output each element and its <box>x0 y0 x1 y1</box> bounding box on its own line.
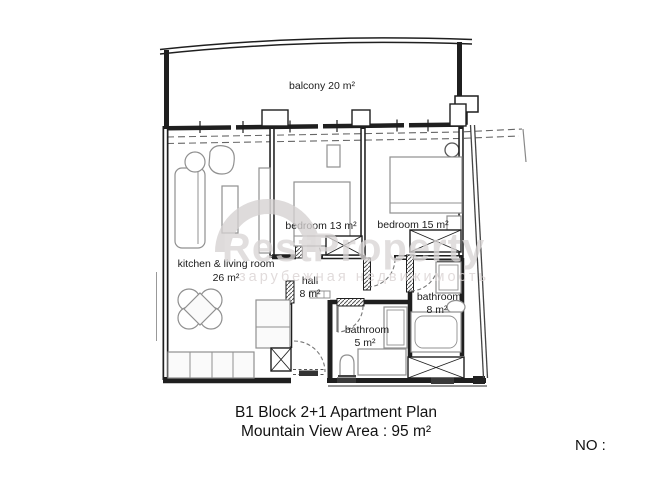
bathroom5-label-2: 5 m² <box>355 337 377 349</box>
hall-label-2: 8 m² <box>300 288 322 300</box>
neighbor-wall-stub <box>523 129 526 162</box>
window-pier-2 <box>352 110 370 126</box>
floor-plan-image: balcony 20 m² <box>0 0 666 480</box>
shower-5-inner <box>387 310 404 345</box>
wardrobe-bath8 <box>408 357 464 378</box>
column-circle <box>445 143 459 157</box>
bathroom5-label-1: bathroom <box>345 324 390 336</box>
toilet-icon <box>340 355 354 376</box>
shaft-box <box>271 348 291 371</box>
window-dashed-2 <box>167 136 519 144</box>
plan-number-label: NO : <box>575 437 606 454</box>
armchair-blob <box>209 146 234 174</box>
kitchen-tall-unit <box>256 300 290 348</box>
window-pier-3 <box>450 104 466 126</box>
watermark-tagline: зарубежная недвижимость <box>239 269 489 285</box>
bath5-mat <box>337 378 356 384</box>
entrance-door <box>293 341 326 376</box>
nightstand-13 <box>327 145 340 167</box>
window-dashed-1 <box>167 129 522 137</box>
bathtub-inner <box>415 316 457 348</box>
bed-15 <box>390 157 462 213</box>
sliding-door-wall <box>167 125 459 129</box>
caption-line-2: Mountain View Area : 95 m² <box>241 423 431 440</box>
caption-line-1: B1 Block 2+1 Apartment Plan <box>235 404 437 421</box>
watermark-brand: RestProperty <box>222 226 485 270</box>
armchair-round <box>185 152 205 172</box>
balcony-outer-edge <box>160 42 472 54</box>
kitchen-living-label-2: 26 m² <box>213 272 240 284</box>
balcony: balcony 20 m² <box>160 38 478 126</box>
bath8-mat <box>431 378 454 385</box>
window-pier-1 <box>262 110 288 126</box>
bathroom8-label-1: bathroom <box>417 291 462 303</box>
floor-plan-svg: balcony 20 m² <box>0 0 666 480</box>
bathroom8-label-2: 8 m² <box>427 304 449 316</box>
sofa <box>175 168 205 248</box>
caption: B1 Block 2+1 Apartment Plan Mountain Vie… <box>235 404 606 454</box>
kitchen-counter <box>168 352 254 378</box>
bath5-cabinet <box>358 349 406 375</box>
dining-set <box>178 289 222 329</box>
balcony-label: balcony 20 m² <box>289 80 355 92</box>
